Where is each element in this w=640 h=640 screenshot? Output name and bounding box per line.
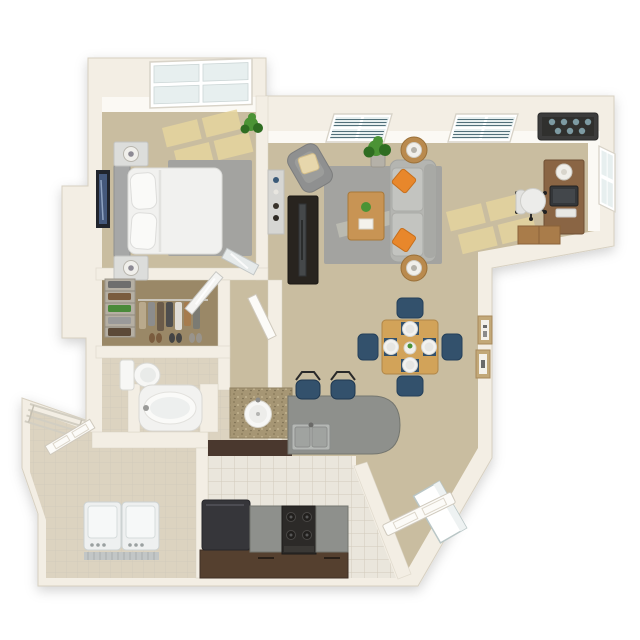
dining-wall-art-2 <box>476 350 490 378</box>
range-stove <box>282 506 316 554</box>
sofa <box>390 160 436 262</box>
refrigerator <box>202 500 250 550</box>
floor-plan-svg: One-bedroom apartment 3D floor plan (top… <box>0 0 640 640</box>
bathtub <box>139 385 202 431</box>
wall-vanity-kitchen-divider <box>208 440 292 456</box>
bathroom-vanity <box>230 388 292 438</box>
floor-plan-stage: One-bedroom apartment 3D floor plan (top… <box>0 0 640 640</box>
living-window-blinds-1 <box>326 114 392 142</box>
living-window-blinds-2 <box>448 114 518 142</box>
vanity-faucet <box>256 398 261 403</box>
closet-shelf-unit <box>105 279 135 337</box>
washer <box>84 502 121 550</box>
island-double-sink <box>292 423 330 451</box>
dryer <box>122 502 159 550</box>
tv-console <box>288 196 318 284</box>
wall-tub-stub-left <box>128 384 140 432</box>
appliance-vents <box>84 552 159 560</box>
tub-faucet <box>143 405 149 411</box>
keyboard <box>556 209 576 217</box>
counter-left <box>250 506 282 552</box>
office-cabinet <box>518 226 560 244</box>
sideboard <box>268 170 284 234</box>
bedroom-wall-art <box>96 170 110 228</box>
dining-chair-north <box>397 298 423 318</box>
wall-tub-stub-right <box>200 384 218 432</box>
sink-faucet <box>309 423 314 428</box>
dining-chair-west <box>358 334 378 360</box>
ceiling-vent-fixture <box>538 113 598 140</box>
wall-bath-laundry <box>92 432 208 448</box>
wall-closet-hall <box>218 280 230 390</box>
kitchen-base-cabinets <box>200 550 348 578</box>
hall-floor <box>230 280 268 390</box>
table-centerpiece <box>404 342 416 354</box>
coffee-table <box>348 192 384 240</box>
office-east-wall-face <box>588 143 600 231</box>
bedroom-window <box>150 58 252 108</box>
end-table-2 <box>401 255 427 281</box>
office-window <box>599 146 615 212</box>
counter-right <box>316 506 348 552</box>
wall-closet-south <box>96 346 230 358</box>
dining-chair-east <box>442 334 462 360</box>
bed-pillow-2 <box>130 212 157 250</box>
dining-wall-art-1 <box>478 316 492 344</box>
desk <box>544 160 584 234</box>
coffee-table-book <box>359 219 373 229</box>
dining-chair-south <box>397 376 423 396</box>
bed-pillow-1 <box>130 172 157 210</box>
coffee-table-plant <box>361 202 371 212</box>
end-table-1 <box>401 137 427 163</box>
